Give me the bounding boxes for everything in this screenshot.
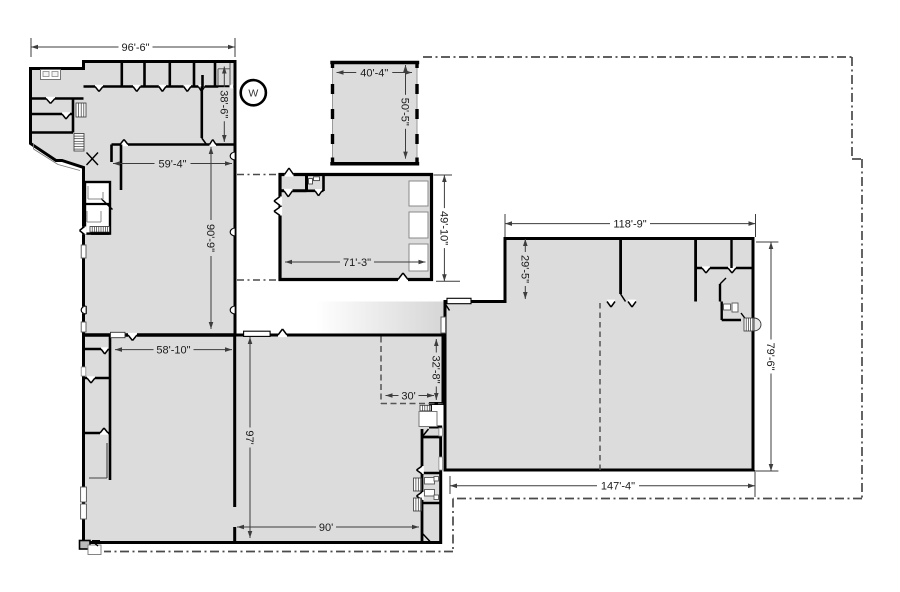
svg-text:32'-8": 32'-8" [429,355,441,383]
svg-text:58'-10": 58'-10" [156,344,190,356]
svg-text:38'-6": 38'-6" [217,90,229,118]
svg-text:147'-4": 147'-4" [601,481,635,493]
svg-text:118'-9": 118'-9" [613,218,646,230]
svg-text:50'-5": 50'-5" [399,98,411,126]
svg-text:90'-9": 90'-9" [204,224,216,252]
svg-text:40'-4": 40'-4" [360,67,388,79]
svg-text:90': 90' [319,522,333,534]
svg-text:30': 30' [401,390,415,402]
svg-text:29'-5": 29'-5" [518,255,530,283]
svg-text:96'-6": 96'-6" [121,42,149,54]
svg-text:W: W [248,88,258,100]
svg-text:71'-3": 71'-3" [343,257,371,269]
svg-text:97': 97' [243,430,255,444]
svg-text:59'-4": 59'-4" [158,158,186,170]
svg-text:79'-6": 79'-6" [764,342,776,370]
svg-text:49'-10": 49'-10" [438,211,450,245]
